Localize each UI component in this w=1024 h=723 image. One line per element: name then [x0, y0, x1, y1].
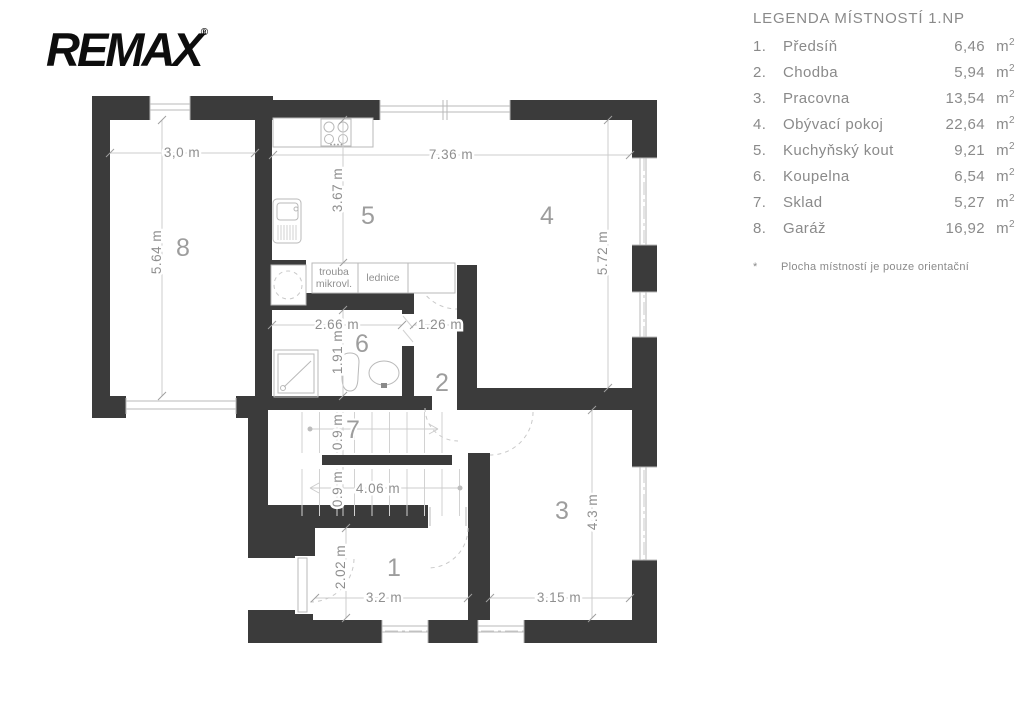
- room-number-study: 3: [555, 497, 569, 525]
- kitchen-counter: [273, 118, 373, 147]
- room-number-bathroom: 6: [355, 330, 369, 358]
- dim-living-height: 5.72 m: [595, 231, 610, 275]
- legend-room-area: 5,94: [937, 64, 985, 81]
- dim-bath-height: 1.91 m: [330, 330, 345, 374]
- legend-room-name: Obývací pokoj: [783, 116, 937, 133]
- legend-room-name: Garáž: [783, 220, 937, 237]
- washing-machine-icon: [271, 265, 306, 305]
- dim-kitchen-height: 3.67 m: [330, 168, 345, 212]
- legend-room-number: 8.: [753, 220, 783, 237]
- legend-room-area: 16,92: [937, 220, 985, 237]
- legend-room-name: Kuchyňský kout: [783, 142, 937, 159]
- dim-study-width: 3.15 m: [537, 590, 581, 605]
- legend-row: 6. Koupelna 6,54 m2: [753, 167, 1015, 193]
- legend-room-name: Sklad: [783, 194, 937, 211]
- shower-icon: [274, 350, 318, 397]
- legend-footnote: * Plocha místností je pouze orientační: [753, 261, 1015, 273]
- legend-row: 7. Sklad 5,27 m2: [753, 193, 1015, 219]
- legend-area-unit: m2: [985, 115, 1015, 133]
- axis-lines: [110, 118, 644, 631]
- fridge-label: lednice: [366, 272, 399, 284]
- legend-room-area: 22,64: [937, 116, 985, 133]
- legend-row: 2. Chodba 5,94 m2: [753, 63, 1015, 89]
- dim-entry-width: 3.2 m: [366, 590, 402, 605]
- dim-stair-width-top: 0.9 m: [330, 414, 345, 450]
- legend-room-number: 4.: [753, 116, 783, 133]
- floorplan-page: REMAX®: [0, 0, 1024, 723]
- legend-area-unit: m2: [985, 89, 1015, 107]
- legend-area-unit: m2: [985, 219, 1015, 237]
- oven-label-line2: mikrovl.: [316, 278, 352, 290]
- dim-living-width: 7.36 m: [429, 147, 473, 162]
- legend-room-area: 5,27: [937, 194, 985, 211]
- legend-room-name: Koupelna: [783, 168, 937, 185]
- legend-room-number: 5.: [753, 142, 783, 159]
- room-number-garage: 8: [176, 234, 190, 262]
- legend-room-number: 7.: [753, 194, 783, 211]
- legend-area-unit: m2: [985, 193, 1015, 211]
- dim-entry-height: 2.02 m: [333, 545, 348, 589]
- legend-room-number: 3.: [753, 90, 783, 107]
- legend-room-area: 13,54: [937, 90, 985, 107]
- dim-stair-width-bottom: 0.9 m: [330, 471, 345, 507]
- legend-row: 4. Obývací pokoj 22,64 m2: [753, 115, 1015, 141]
- legend-row: 5. Kuchyňský kout 9,21 m2: [753, 141, 1015, 167]
- room-legend: LEGENDA MÍSTNOSTÍ 1.NP 1. Předsíň 6,46 m…: [753, 10, 1015, 273]
- dim-stair-length: 4.06 m: [356, 481, 400, 496]
- footnote-asterisk: *: [753, 261, 781, 273]
- legend-area-unit: m2: [985, 63, 1015, 81]
- oven-label-line1: trouba: [319, 266, 349, 278]
- legend-row: 8. Garáž 16,92 m2: [753, 219, 1015, 245]
- legend-room-name: Předsíň: [783, 38, 937, 55]
- legend-row: 1. Předsíň 6,46 m2: [753, 37, 1015, 63]
- legend-area-unit: m2: [985, 37, 1015, 55]
- legend-room-name: Chodba: [783, 64, 937, 81]
- walls: [92, 96, 657, 643]
- dim-hall-width: 1.26 m: [418, 317, 462, 332]
- legend-room-number: 2.: [753, 64, 783, 81]
- dim-garage-height: 5.64 m: [149, 230, 164, 274]
- legend-room-name: Pracovna: [783, 90, 937, 107]
- legend-room-area: 6,46: [937, 38, 985, 55]
- room-number-kitchen: 5: [361, 202, 375, 230]
- washbasin-icon: [369, 361, 399, 388]
- footnote-text: Plocha místností je pouze orientační: [781, 261, 969, 273]
- legend-area-unit: m2: [985, 167, 1015, 185]
- legend-row: 3. Pracovna 13,54 m2: [753, 89, 1015, 115]
- dim-bath-width: 2.66 m: [315, 317, 359, 332]
- legend-room-area: 9,21: [937, 142, 985, 159]
- room-number-entry: 1: [387, 554, 401, 582]
- legend-title: LEGENDA MÍSTNOSTÍ 1.NP: [753, 10, 1015, 27]
- legend-room-number: 6.: [753, 168, 783, 185]
- legend-room-number: 1.: [753, 38, 783, 55]
- kitchen-sink-icon: [273, 199, 301, 243]
- garage-door: [126, 398, 236, 414]
- room-number-living: 4: [540, 202, 554, 230]
- legend-area-unit: m2: [985, 141, 1015, 159]
- room-number-corridor: 2: [435, 369, 449, 397]
- dim-study-height: 4.3 m: [585, 494, 600, 530]
- dim-garage-width: 3,0 m: [164, 145, 200, 160]
- legend-room-area: 6,54: [937, 168, 985, 185]
- room-number-stairs: 7: [346, 416, 360, 444]
